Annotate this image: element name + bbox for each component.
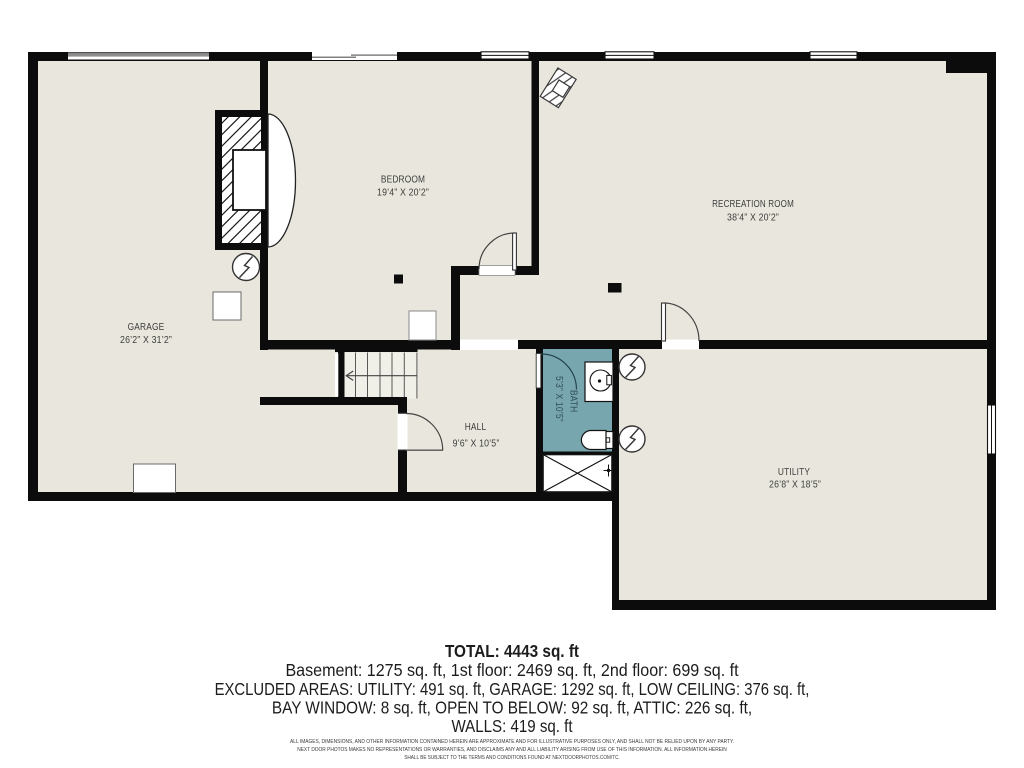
svg-text:Basement: 1275 sq. ft, 1st flo: Basement: 1275 sq. ft, 1st floor: 2469 s… xyxy=(285,660,738,680)
svg-text:SHALL BE SUBJECT TO THE TERMS: SHALL BE SUBJECT TO THE TERMS AND CONDIT… xyxy=(404,755,620,762)
svg-text:9’6” X 10’5”: 9’6” X 10’5” xyxy=(453,438,500,450)
svg-text:GARAGE: GARAGE xyxy=(128,321,165,332)
svg-text:BEDROOM: BEDROOM xyxy=(381,174,425,185)
svg-text:TOTAL: 4443 sq. ft: TOTAL: 4443 sq. ft xyxy=(445,641,580,661)
svg-text:5’3” X 10’5”: 5’3” X 10’5” xyxy=(554,376,566,422)
svg-text:38’4” X 20’2”: 38’4” X 20’2” xyxy=(727,212,779,224)
svg-text:EXCLUDED AREAS: UTILITY: 491 s: EXCLUDED AREAS: UTILITY: 491 sq. ft, GAR… xyxy=(215,680,810,700)
svg-text:26’2” X 31’2”: 26’2” X 31’2” xyxy=(120,334,172,346)
svg-text:19’4” X 20’2”: 19’4” X 20’2” xyxy=(377,187,429,199)
svg-text:WALLS: 419 sq. ft: WALLS: 419 sq. ft xyxy=(451,717,572,736)
svg-text:HALL: HALL xyxy=(465,421,487,432)
svg-text:RECREATION ROOM: RECREATION ROOM xyxy=(712,198,794,209)
svg-text:ALL IMAGES, DIMENSIONS, AND OT: ALL IMAGES, DIMENSIONS, AND OTHER INFORM… xyxy=(290,739,734,745)
svg-text:NEXT DOOR PHOTOS MAKES NO REPR: NEXT DOOR PHOTOS MAKES NO REPRESENTATION… xyxy=(297,747,727,754)
svg-text:26’8” X 18’5”: 26’8” X 18’5” xyxy=(769,479,821,491)
svg-text:BATH: BATH xyxy=(568,390,579,412)
svg-text:UTILITY: UTILITY xyxy=(778,466,810,477)
svg-text:BAY WINDOW: 8 sq. ft, OPEN TO: BAY WINDOW: 8 sq. ft, OPEN TO BELOW: 92 … xyxy=(272,697,752,717)
